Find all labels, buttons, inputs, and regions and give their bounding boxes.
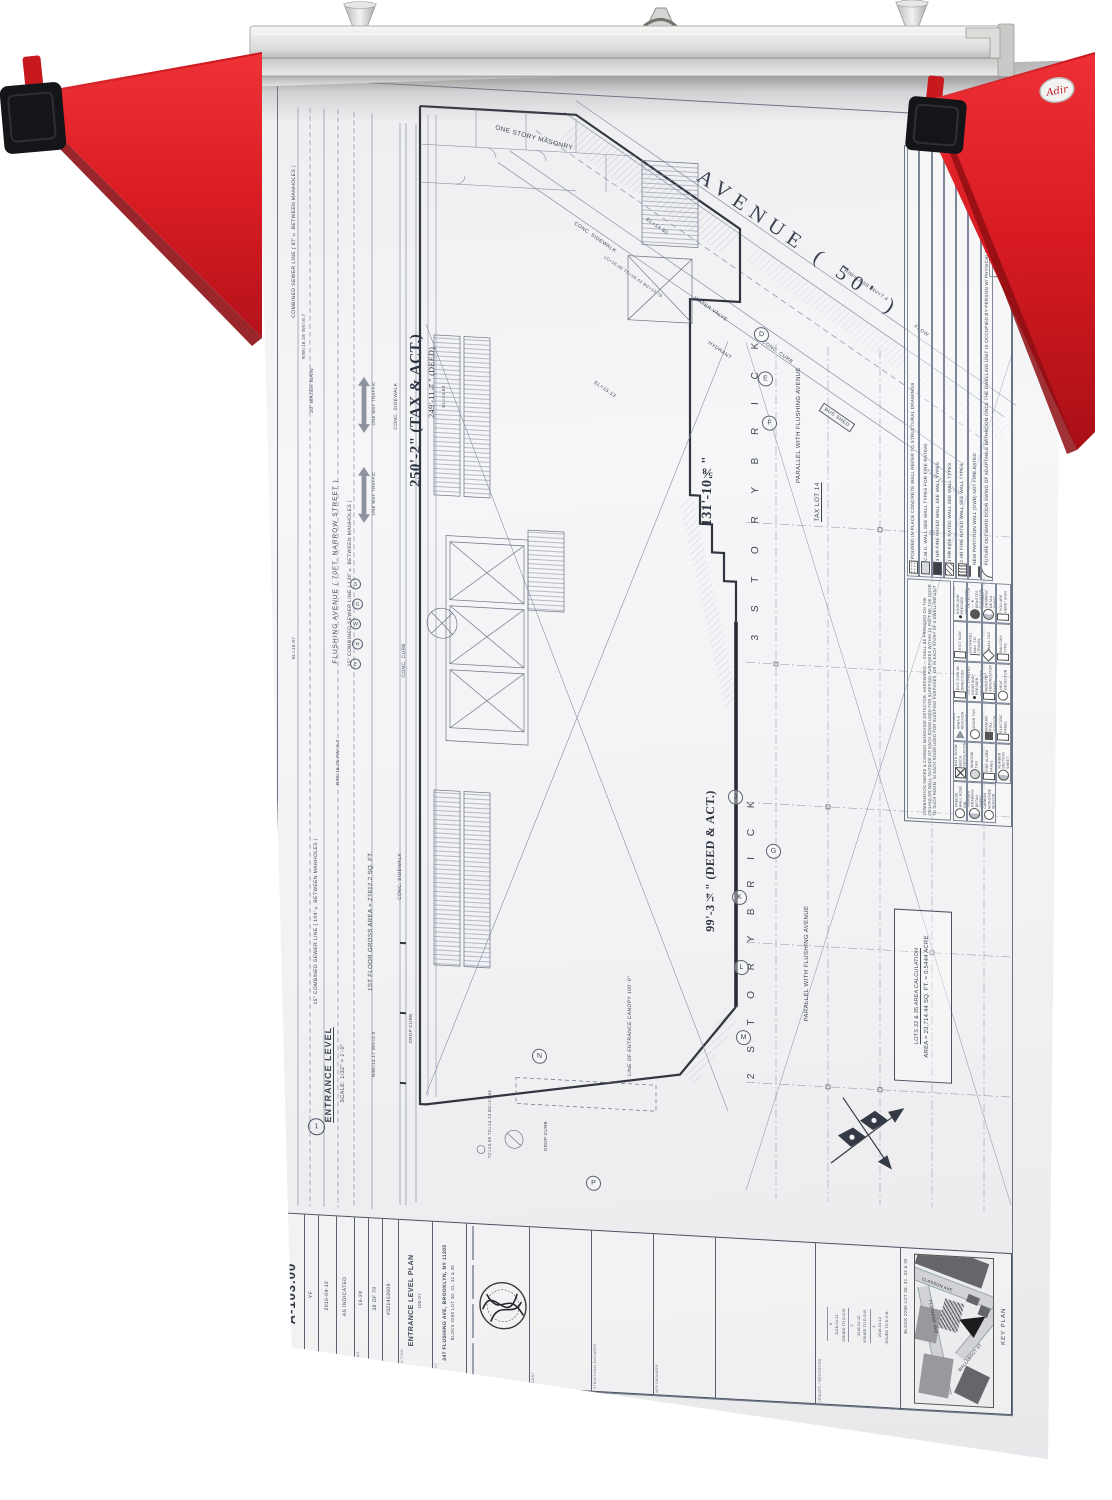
legend-symbol-icon bbox=[997, 733, 1009, 741]
legend-symbol-icon bbox=[983, 649, 996, 662]
legend-symbol-item: FIRE ALARM PANEL bbox=[982, 742, 996, 783]
legend-symbol-list: INDICATES 1 1/2 HR. FIRE RATED U.L.C. LA… bbox=[953, 581, 1011, 824]
parallel-label: PARALLEL WITH FLUSHING AVENUE bbox=[796, 367, 803, 483]
mep-engineer-cell: MEP ENGINEER bbox=[654, 1234, 716, 1397]
parallel-label: PARALLEL WITH FLUSHING AVENUE bbox=[804, 906, 811, 1022]
issues-revisions-cell: ISSUES / REVISIONS 3 2016-04-12 ISSUED T… bbox=[816, 1243, 902, 1408]
spot-elevation: EL=15.97 bbox=[292, 637, 297, 659]
drawing-title-cell: DRAWING TITLE ENTRANCE LEVEL PLAN 100-07 bbox=[399, 1220, 433, 1382]
legend-symbol-item: INDICATES 1 1/2 HR. FIRE RATED U.L.C. LA… bbox=[953, 581, 967, 622]
legend-symbol-icon bbox=[921, 561, 930, 575]
legend-symbol-item: SMOKE DETECTOR — ★ DENOTES ELEVATOR RECA… bbox=[967, 582, 981, 623]
conc-sidewalk-label: CONC. SIDEWALK bbox=[398, 853, 403, 900]
one-way-traffic-label: ONE WAY TRAFFIC bbox=[372, 381, 377, 425]
wall-bracket-left bbox=[0, 40, 290, 370]
legend-symbol-item: DOOR TAG bbox=[967, 702, 981, 743]
legend-symbol-item: DETAIL NUMBER DRAWING DETAIL SHEET NUMBE… bbox=[982, 582, 996, 623]
legend-symbol-icon bbox=[955, 808, 965, 819]
legend-symbol-item: FIRE ALARM REMOTE ANNUNCIATOR PANEL bbox=[982, 662, 996, 703]
utility-bubble: H bbox=[352, 638, 363, 650]
legend-symbol-item: "YOU ARE HERE" SIGN bbox=[996, 583, 1010, 624]
grid-bubble: D bbox=[754, 327, 769, 343]
drop-curb-label: DROP CURB bbox=[544, 1121, 549, 1151]
legend-symbol-item: ELECTRIC PANEL bbox=[996, 703, 1010, 744]
legend-detector-note: COMBINATION SMOKE & CARBON MONOXIDE DETE… bbox=[907, 578, 951, 820]
blueprint-hanger-product-photo: AVENUE ( 50' ) ONE STORY MASONRY CONC. S… bbox=[0, 0, 1112, 1500]
manhole-rim-label: RIM=14.17 INV=2.0 bbox=[372, 1031, 377, 1077]
architect-cell: KARL FISCHER ARCHITECT REGISTERED ARCHIT… bbox=[467, 1224, 531, 1388]
grid-bubble: M bbox=[736, 1030, 751, 1046]
legend-symbol-icon bbox=[997, 613, 1009, 621]
drawn-by-cell: DRAWN YF bbox=[305, 1215, 319, 1376]
legend-symbol-item: EXIT SIGN bbox=[953, 621, 967, 662]
legend-symbol-item: WALL TAG bbox=[982, 622, 996, 663]
revision-row: 3 2016-04-12 ISSUED TO D.O.B. bbox=[827, 1307, 846, 1342]
legend-symbol-icon bbox=[958, 563, 967, 577]
drawing-title: ENTRANCE LEVEL PLAN bbox=[408, 1254, 416, 1346]
architect-seal bbox=[477, 1278, 529, 1333]
utility-bubble: G bbox=[352, 598, 363, 610]
client-cell: CLIENT bbox=[530, 1227, 592, 1390]
dimension-250: 250'-2" (TAX & ACT.) bbox=[408, 333, 425, 487]
grid-bubble: P bbox=[586, 1175, 601, 1191]
job-number-cell: #321453609 bbox=[383, 1219, 399, 1380]
architect-address-lines bbox=[471, 1226, 475, 1382]
view-scale: SCALE: 1/32" = 1'-0" bbox=[340, 1044, 346, 1103]
utility-bubble: E bbox=[350, 658, 361, 670]
date-cell: DATE 2016-04-12 bbox=[319, 1215, 337, 1376]
legend-symbol-icon bbox=[984, 810, 994, 821]
legend-symbol-icon bbox=[981, 565, 993, 578]
dimension-131: 131'-10⅝" bbox=[700, 456, 715, 527]
legend-symbol-item: HEAT DETECTOR bbox=[996, 663, 1010, 704]
sheet-number-cell: SHEET 38 OF 70 bbox=[369, 1218, 383, 1379]
area-calc-value: AREA = 23,714.44 SQ. FT. = 0.5444 ACRE bbox=[924, 935, 932, 1058]
legend-symbol-icon bbox=[970, 769, 980, 780]
grid-bubble: K bbox=[732, 889, 747, 905]
legend-symbol-icon bbox=[970, 729, 980, 740]
legend-symbol-icon bbox=[997, 653, 1009, 661]
flushing-avenue-label: FLUSHING AVENUE ( 70FT. NARROW STREET ) bbox=[332, 479, 339, 664]
sewer-104-label: 15" COMBINED SEWER LINE ( 104'± BETWEEN … bbox=[314, 838, 320, 1005]
curb-elevations-label: TC=13.65 TC=14.13 BC=13.64 bbox=[488, 1090, 493, 1159]
legend-symbol-item: SECTION NUMBER SECTION SHEET NUMBER bbox=[996, 743, 1010, 784]
legend-symbol-icon bbox=[969, 808, 980, 820]
legend-symbol-icon bbox=[998, 769, 1009, 781]
drop-curb-label: DROP CURB bbox=[409, 1013, 414, 1043]
grid-bubble: F bbox=[762, 415, 777, 431]
legend-symbol-item: BALCONY TYPE bbox=[996, 623, 1010, 664]
scale-cell: SCALE AS INDICATED bbox=[337, 1216, 355, 1377]
gross-area-label: 1ST FLOOR GROSS AREA = 27812.2 SQ. FT. bbox=[368, 851, 375, 991]
revision-row: 2 2016-04-12 ISSUED TO D.O.B. bbox=[848, 1308, 867, 1343]
signature-scribble bbox=[483, 1293, 523, 1323]
legend-symbol-item: ELEVATION NUMBER DRAWING DETAIL SHEET NU… bbox=[967, 782, 981, 823]
project-number-cell: PROJECT NO. 16-24 bbox=[355, 1217, 369, 1378]
wall-bracket-right: Adir bbox=[905, 40, 1112, 470]
view-title: ENTRANCE LEVEL bbox=[324, 1027, 334, 1123]
canopy-label: LINE OF ENTRANCE CANOPY 100'-0" bbox=[628, 976, 634, 1076]
key-plan-map: CLASSON AVE FLUSHING AVE WALLABOUT ST bbox=[914, 1254, 994, 1408]
area-calculation-box: LOTS 32 & 35 AREA CALCULATION AREA = 23,… bbox=[894, 909, 952, 1084]
area-calc-title: LOTS 32 & 35 AREA CALCULATION bbox=[914, 948, 921, 1045]
north-arrow-icon bbox=[831, 1097, 903, 1169]
legend-symbol-icon bbox=[933, 562, 942, 576]
legend-symbol-item: INDICATES 3/4 HR. FIRE RATED U.L.C. LABE… bbox=[967, 662, 981, 703]
utility-bubble: W bbox=[350, 618, 361, 630]
drawing-number: A-103.00 bbox=[284, 1263, 298, 1325]
legend-symbol-item: REVISED AREA & REVISION NUMBER bbox=[953, 701, 967, 742]
sewer-87-label: COMBINED SEWER LINE ( 87'± BETWEEN MANHO… bbox=[292, 165, 298, 318]
legend-symbol-icon bbox=[954, 691, 966, 699]
grid-bubble: L bbox=[734, 960, 749, 976]
legend-symbol-icon bbox=[970, 654, 980, 660]
manhole-rim-label: RIM=16.18 INV=6.7 bbox=[302, 313, 307, 359]
legend-symbol-item: BATH ROOM MECH VENTILATION bbox=[953, 741, 967, 782]
one-way-traffic-label: ONE WAY TRAFFIC bbox=[372, 471, 377, 515]
consultant-cell bbox=[716, 1238, 816, 1404]
legend-symbol-icon bbox=[983, 609, 994, 621]
legend-symbol-icon bbox=[956, 730, 965, 739]
dimension-99: 99'-3¼" (DEED & ACT.) bbox=[704, 790, 717, 932]
legend-symbol-item: WINDOW TAG bbox=[967, 742, 981, 783]
legend-symbol-icon bbox=[983, 773, 995, 781]
legend-symbol-icon bbox=[970, 609, 980, 620]
project-address-cell: PROJECT 347 FLUSHING AVE, BROOKLYN, NY 1… bbox=[433, 1222, 467, 1384]
conc-curb-label: CONC. CURB bbox=[402, 643, 407, 678]
legend-symbol-icon bbox=[998, 690, 1008, 701]
legend-symbol-icon bbox=[945, 562, 954, 576]
legend-symbol-item: FIRE ALARM MANUAL PULL STATION bbox=[982, 702, 996, 743]
revision-rows: 3 2016-04-12 ISSUED TO D.O.B. 2 2016-04-… bbox=[827, 1307, 889, 1345]
grid-bubble: J bbox=[728, 789, 743, 805]
dimension-249: 249'-11¾" (DEED) bbox=[428, 346, 437, 418]
legend-symbol-icon bbox=[983, 693, 995, 701]
legend-symbol-icon bbox=[959, 615, 962, 618]
legend-symbol-icon bbox=[954, 651, 966, 659]
legend-symbol-icon bbox=[969, 566, 980, 578]
legend-symbol-icon bbox=[985, 732, 993, 740]
legend-symbol-item: NON-FREEZE WALL HOSE BIB (RECESSED) bbox=[953, 781, 967, 822]
legend-symbol-item: CARBON MONOXIDE SENSOR bbox=[982, 782, 996, 823]
legend-symbol-icon bbox=[955, 767, 966, 779]
architect-name: KARL FISCHER ARCHITECT bbox=[467, 1245, 470, 1362]
legend-symbol-item: ACTUAL T.D. (TRAVEL DISTANCE) MAX. T.D. … bbox=[967, 622, 981, 663]
revision-row: 1 2016-04-12 ISSUED TO D.O.B. bbox=[870, 1309, 889, 1344]
grid-bubble: N bbox=[532, 1048, 547, 1064]
water-main-label: 20' WATER MAIN bbox=[310, 368, 316, 413]
conc-sidewalk-label: CONC. SIDEWALK bbox=[394, 383, 399, 430]
grid-bubble: E bbox=[758, 371, 773, 387]
legend-symbol-item: EXIT SIGN W/ DIRECTION bbox=[953, 661, 967, 702]
utility-bubble: S bbox=[350, 578, 361, 590]
key-plan-cell: BLOCK 2260 LOT 30, 31, 32 & 35 CLA bbox=[901, 1248, 1011, 1414]
site-lot-hatch bbox=[938, 1298, 965, 1333]
drawing-number-cell: DRAWING NO. A-103.00 bbox=[279, 1213, 305, 1374]
key-plan-block-label: BLOCK 2260 LOT 30, 31, 32 & 35 bbox=[904, 1258, 909, 1334]
grid-bubble: G bbox=[766, 843, 781, 859]
structural-engineer-cell: STRUCTURAL ENGINEER bbox=[592, 1231, 654, 1394]
legend-symbol-icon bbox=[973, 696, 976, 699]
manhole-rim-label: RIM=15.25 INV=6.2 bbox=[336, 739, 341, 785]
city-block bbox=[919, 1353, 954, 1398]
spot-elevation: EL=14.63 bbox=[442, 385, 447, 407]
legend-symbol-icon bbox=[909, 560, 918, 574]
key-plan-title: KEY PLAN bbox=[1001, 1308, 1008, 1346]
tax-lot-label: TAX LOT 14 bbox=[814, 482, 821, 522]
